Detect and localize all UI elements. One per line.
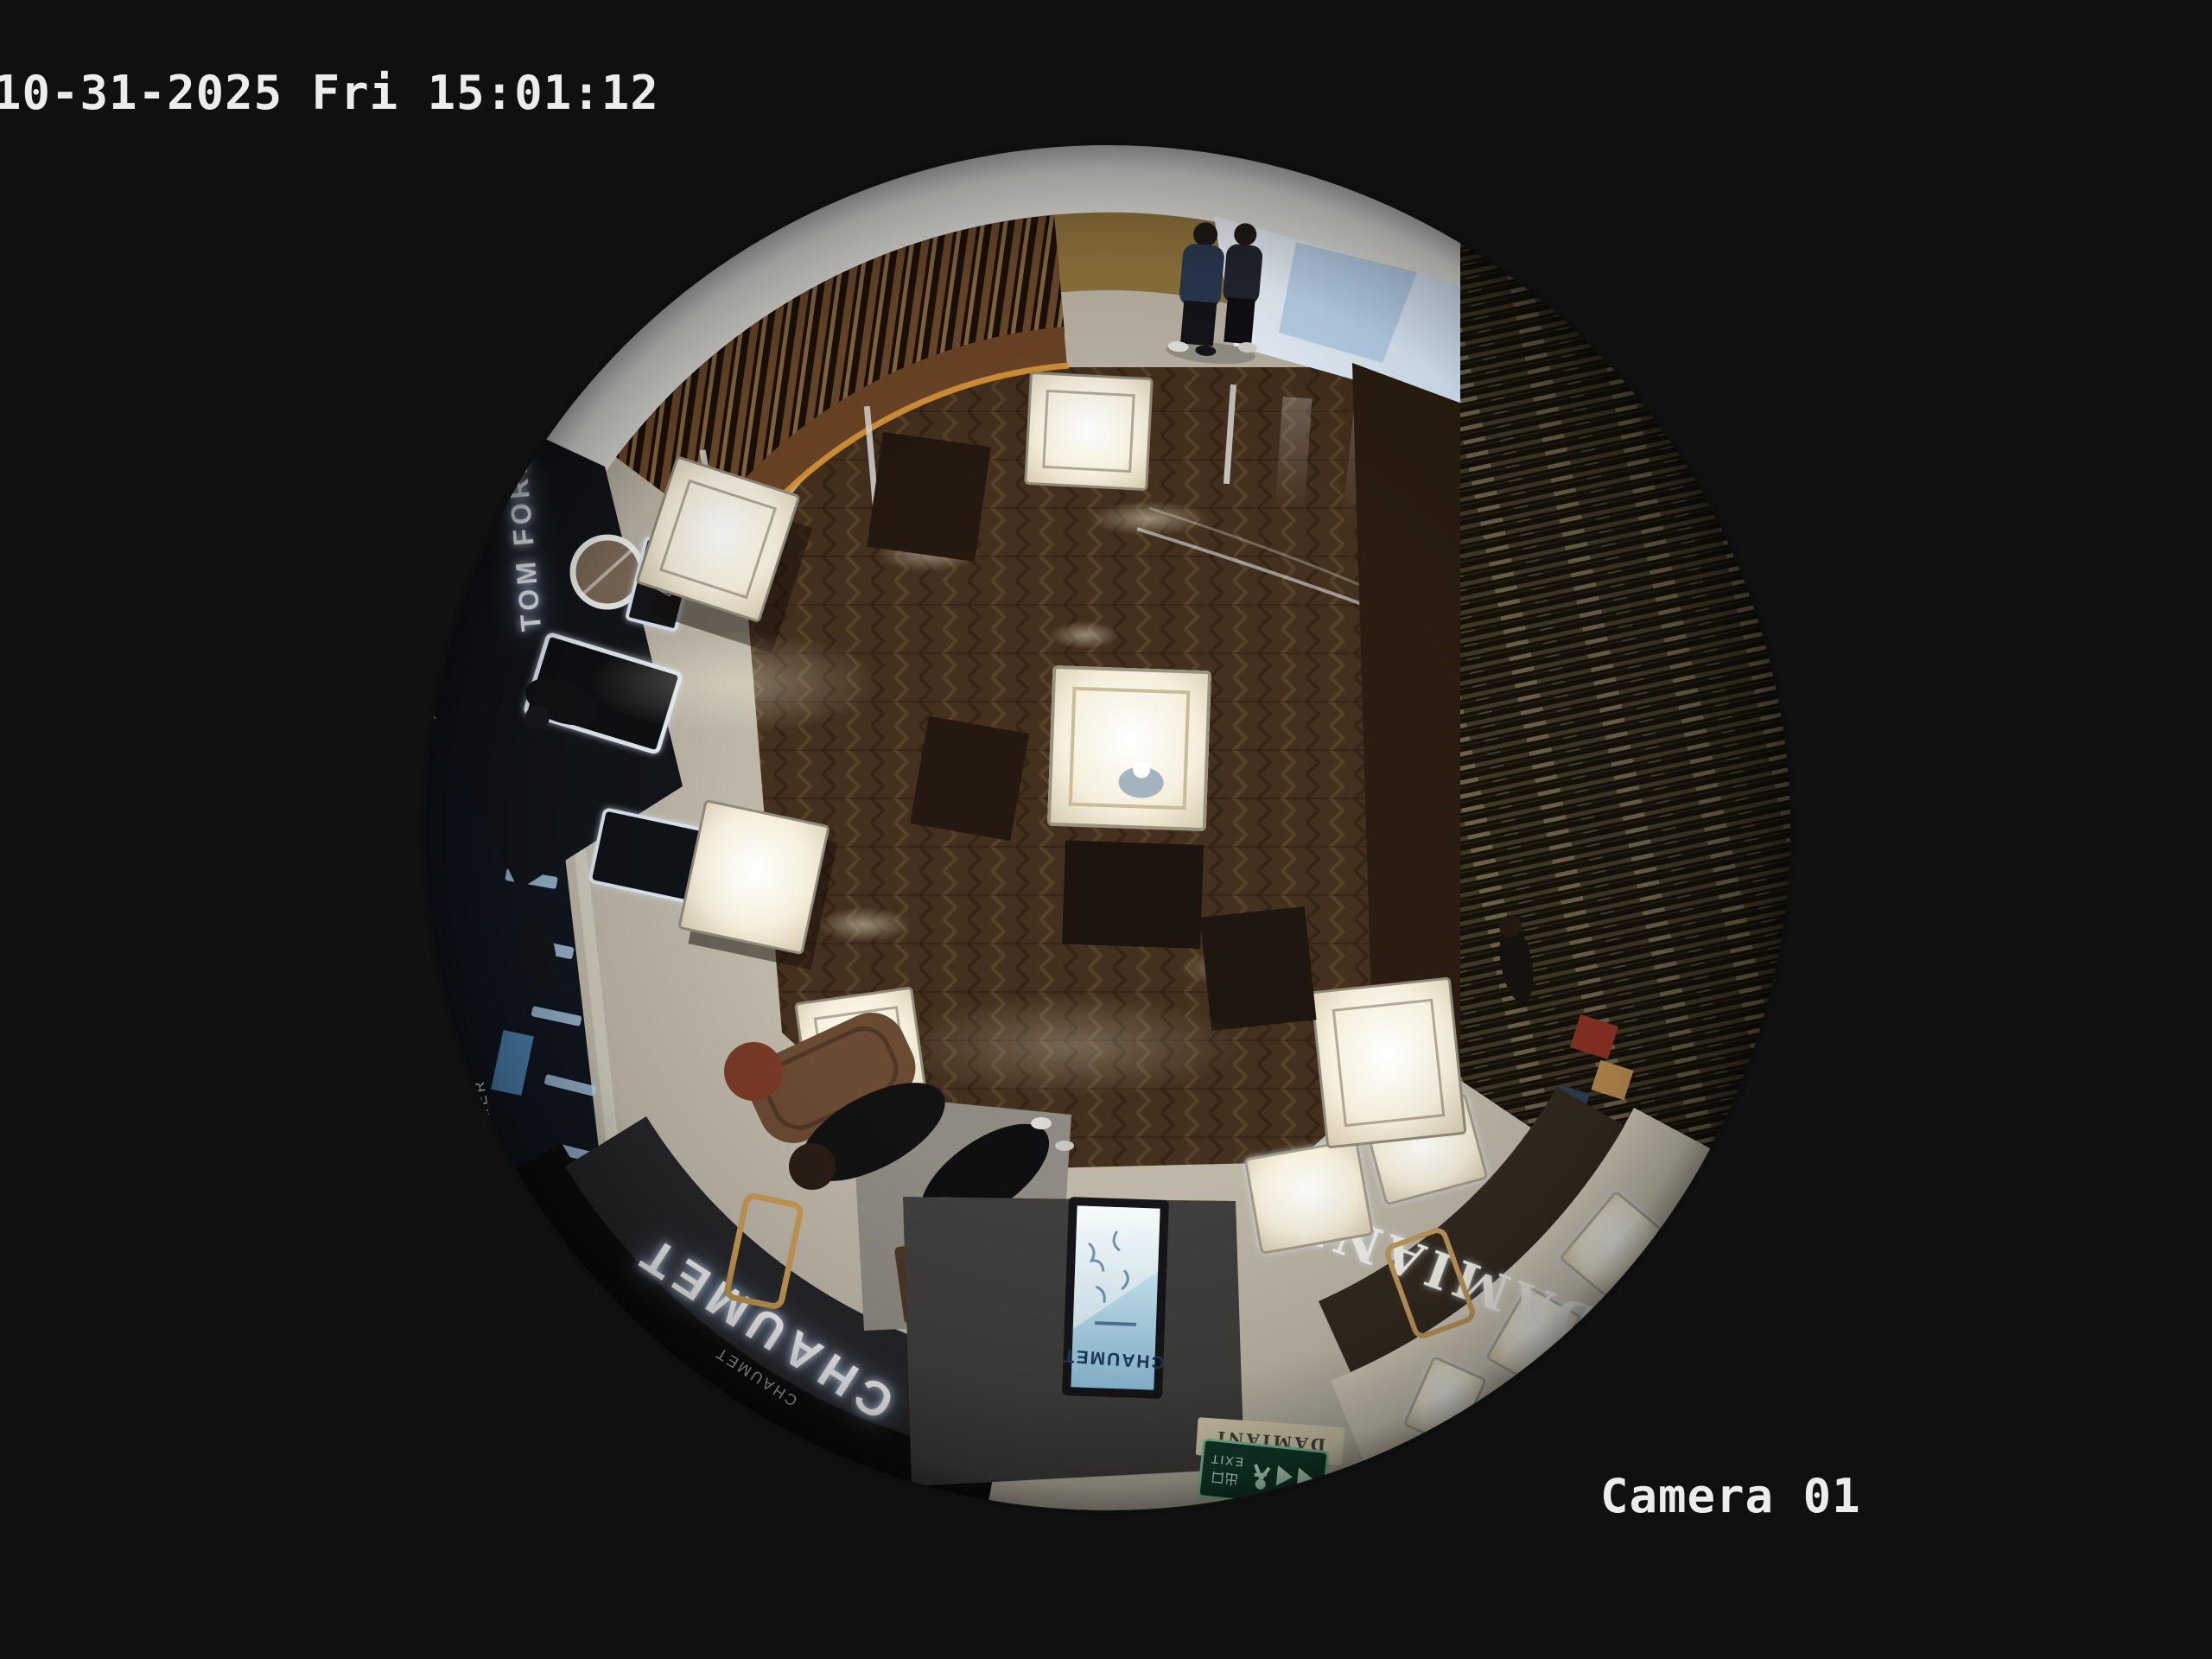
fisheye-camera-feed: LA MER TOM FORD TF	[0, 0, 2212, 1659]
fisheye-vignette	[423, 143, 1792, 1512]
timestamp-overlay: 10-31-2025 Fri 15:01:12	[0, 66, 659, 120]
cctv-viewer: LA MER TOM FORD TF	[0, 0, 2212, 1659]
camera-label: Camera 01	[1600, 1469, 1861, 1523]
